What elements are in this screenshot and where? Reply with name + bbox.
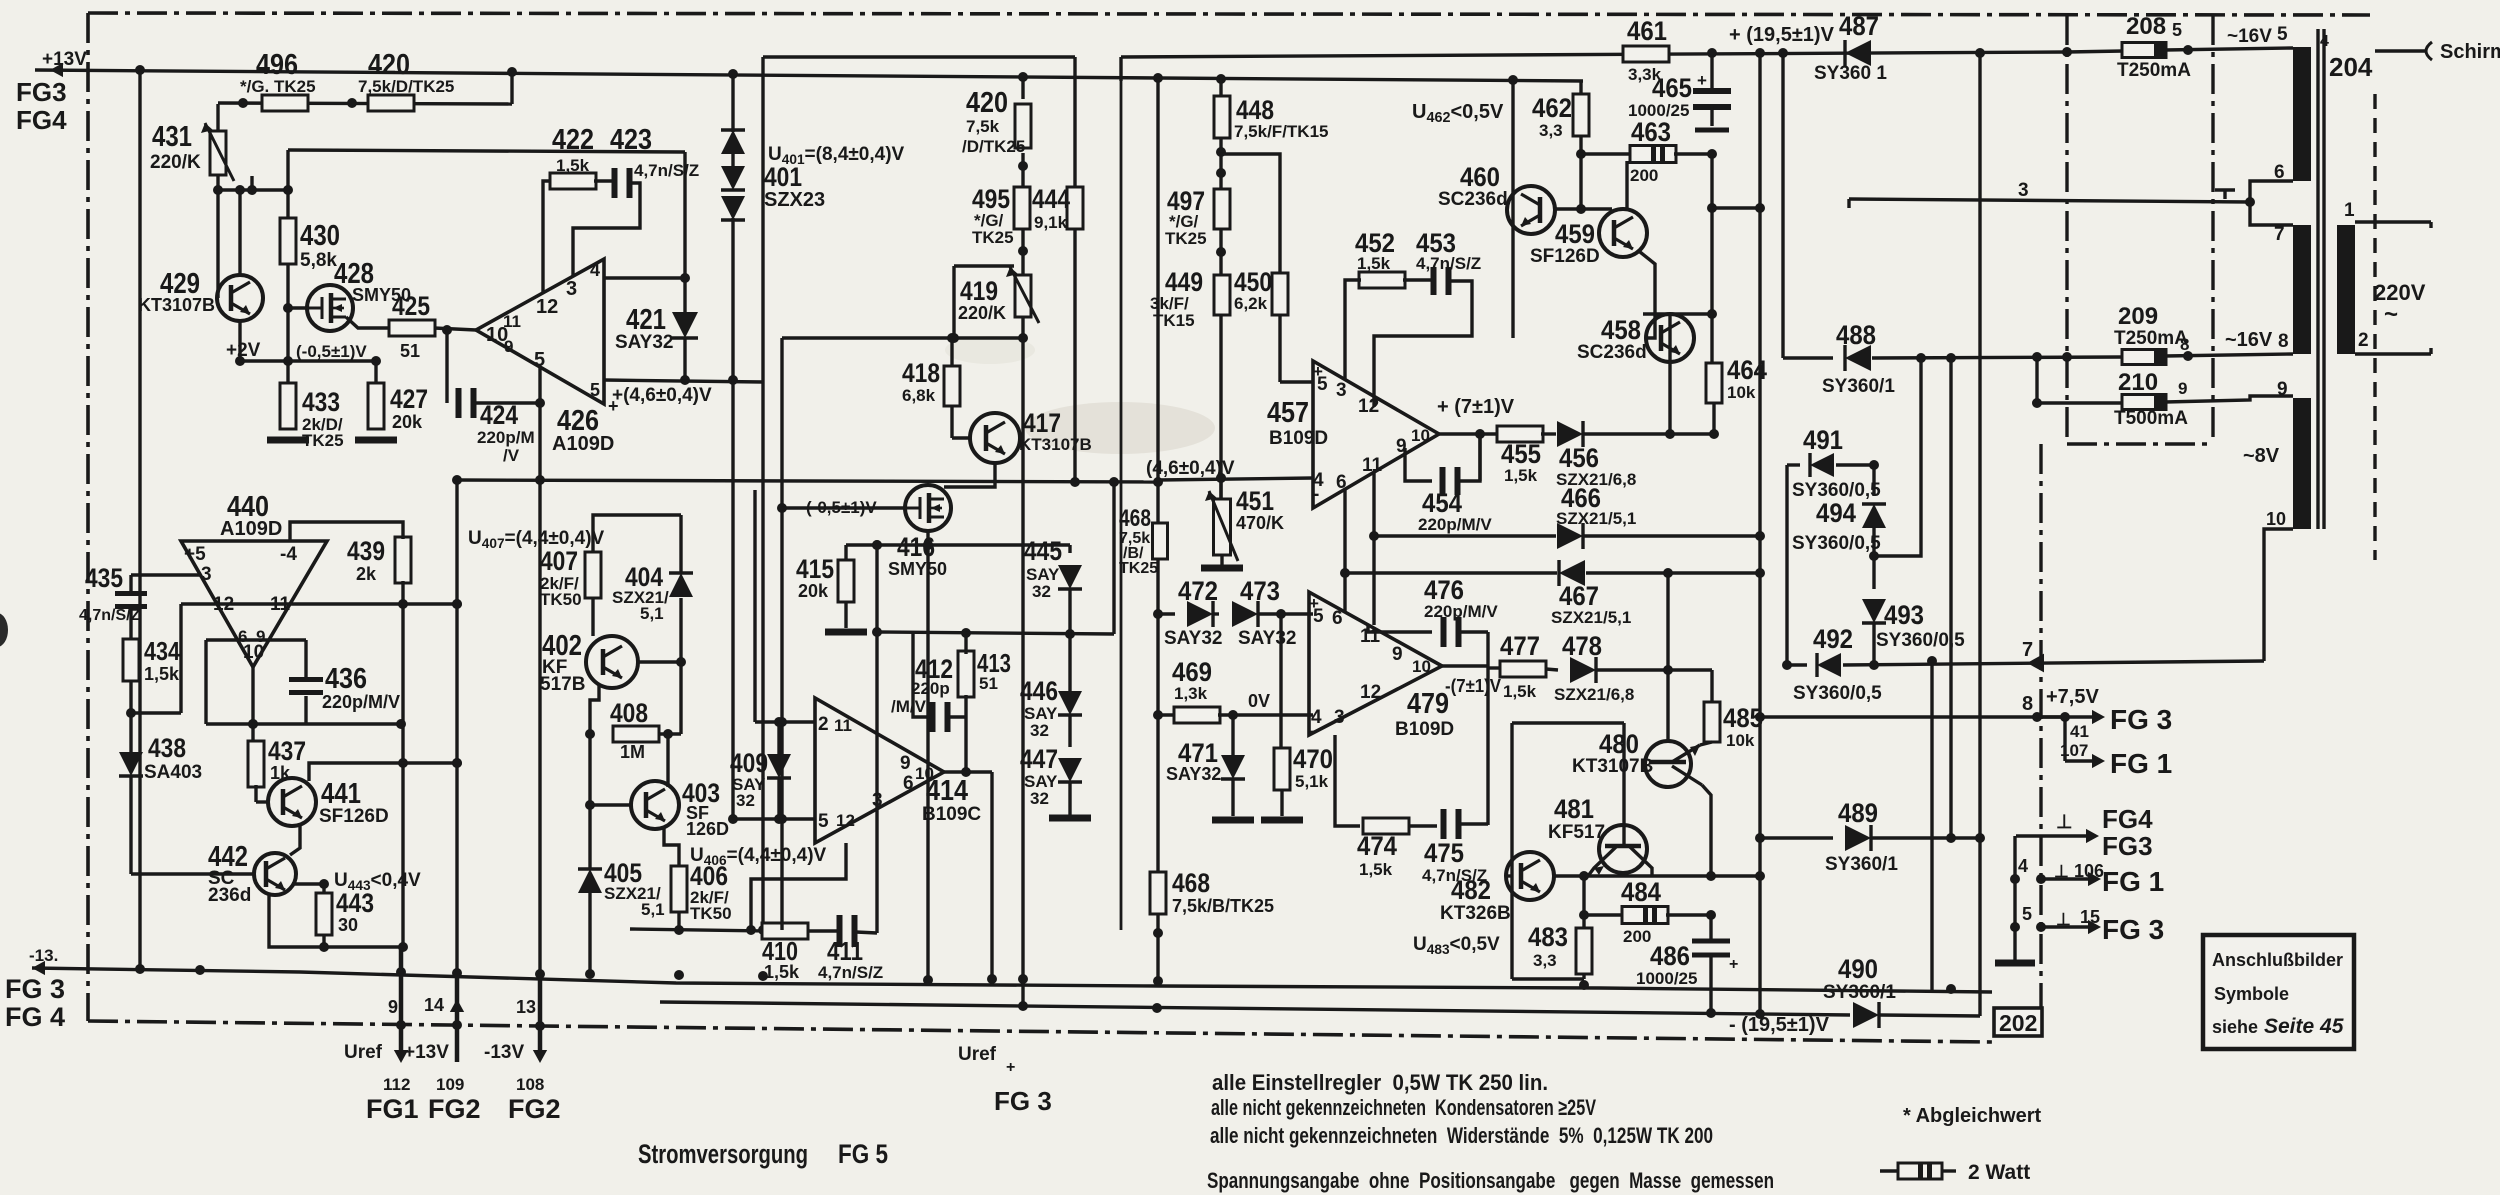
svg-text:-(7±1)V: -(7±1)V: [1445, 676, 1501, 696]
svg-text:5: 5: [590, 380, 600, 400]
svg-text:U483<0,5V: U483<0,5V: [1413, 934, 1500, 957]
svg-text:1,5k: 1,5k: [1359, 860, 1393, 879]
svg-text:4,7n/S/Z: 4,7n/S/Z: [1416, 254, 1481, 273]
svg-text:3: 3: [201, 564, 212, 585]
svg-text:32: 32: [1030, 789, 1049, 808]
svg-text:+: +: [1729, 956, 1738, 973]
svg-text:436: 436: [325, 663, 367, 695]
svg-text:220p/M/V: 220p/M/V: [322, 692, 400, 712]
svg-text:SC236d: SC236d: [1438, 189, 1508, 210]
svg-text:423: 423: [610, 124, 652, 156]
svg-text:+7,5V: +7,5V: [2046, 686, 2099, 708]
svg-text:12: 12: [836, 811, 855, 830]
svg-text:451: 451: [1236, 486, 1274, 516]
svg-text:Spannungsangabe ohne Positio: Spannungsangabe ohne Positionsangabe geg…: [1207, 1168, 1774, 1193]
svg-text:126D: 126D: [686, 819, 729, 839]
svg-text:401: 401: [764, 162, 802, 192]
svg-text:449: 449: [1165, 267, 1203, 297]
svg-text:9: 9: [2178, 379, 2187, 398]
svg-text:465: 465: [1652, 73, 1692, 103]
svg-text:11: 11: [834, 716, 852, 735]
svg-text:-: -: [1313, 484, 1319, 505]
svg-text:TK50: TK50: [540, 590, 582, 609]
svg-text:Anschlußbilder: Anschlußbilder: [2212, 950, 2343, 970]
svg-text:10k: 10k: [1726, 731, 1755, 750]
svg-text:10: 10: [1411, 426, 1430, 445]
svg-text:FG 4: FG 4: [5, 1002, 65, 1032]
svg-text:* Abgleichwert: * Abgleichwert: [1903, 1105, 2042, 1127]
svg-text:8: 8: [2022, 693, 2033, 715]
svg-text:FG4: FG4: [16, 105, 67, 135]
svg-text:4,7n/S/Z: 4,7n/S/Z: [818, 963, 883, 982]
svg-text:FG 1: FG 1: [2110, 748, 2172, 779]
svg-text:419: 419: [960, 276, 998, 306]
svg-text:SY360 1: SY360 1: [1814, 63, 1887, 84]
svg-text:487: 487: [1839, 11, 1879, 41]
svg-text:220/K: 220/K: [958, 303, 1006, 323]
svg-text:2k: 2k: [356, 564, 377, 584]
svg-text:T500mA: T500mA: [2114, 408, 2188, 429]
svg-text:SZX23: SZX23: [764, 189, 825, 211]
svg-text:486: 486: [1650, 941, 1690, 971]
svg-text:474: 474: [1357, 831, 1397, 861]
svg-text:-13.: -13.: [29, 946, 58, 965]
svg-text:FG 1: FG 1: [2102, 866, 2164, 897]
svg-text:32: 32: [1030, 721, 1049, 740]
svg-text:468: 468: [1119, 505, 1151, 532]
svg-text:SA403: SA403: [144, 762, 202, 783]
svg-text:9: 9: [504, 337, 513, 356]
svg-text:SY360/1: SY360/1: [1822, 376, 1895, 397]
svg-text:470: 470: [1293, 744, 1333, 774]
svg-text:456: 456: [1559, 443, 1599, 473]
svg-text:Uref: Uref: [344, 1042, 383, 1063]
svg-text:30: 30: [338, 915, 358, 935]
svg-text:SAY32: SAY32: [1164, 628, 1222, 649]
svg-text:425: 425: [392, 291, 430, 321]
svg-text:202: 202: [1999, 1010, 2037, 1036]
svg-text:3: 3: [566, 278, 577, 300]
svg-text:6: 6: [903, 773, 914, 794]
svg-text:427: 427: [390, 384, 428, 414]
svg-text:2 Watt: 2 Watt: [1968, 1161, 2030, 1184]
svg-text:236d: 236d: [208, 885, 251, 906]
svg-text:FG3: FG3: [16, 77, 67, 107]
svg-text:FG 3: FG 3: [5, 974, 65, 1004]
svg-text:1000/25: 1000/25: [1636, 969, 1697, 988]
svg-text:220V: 220V: [2374, 280, 2426, 305]
svg-text:FG2: FG2: [428, 1094, 481, 1124]
svg-text:492: 492: [1813, 624, 1853, 654]
svg-text:FG1: FG1: [366, 1094, 419, 1124]
svg-text:4,7n/S/Z: 4,7n/S/Z: [634, 161, 699, 180]
svg-text:461: 461: [1627, 16, 1667, 46]
svg-text:5: 5: [818, 811, 829, 832]
svg-text:469: 469: [1172, 657, 1212, 687]
svg-text:459: 459: [1555, 219, 1595, 249]
svg-text:477: 477: [1500, 631, 1540, 661]
svg-text:109: 109: [436, 1075, 464, 1094]
svg-text:-4: -4: [280, 544, 297, 565]
svg-text:220/K: 220/K: [150, 152, 201, 173]
svg-text:462: 462: [1532, 93, 1572, 123]
svg-text:493: 493: [1884, 600, 1924, 630]
svg-text:6: 6: [2274, 162, 2285, 183]
svg-text:32: 32: [736, 791, 755, 810]
svg-text:9: 9: [1392, 644, 1403, 665]
svg-text:468: 468: [1172, 868, 1210, 898]
svg-text:B109D: B109D: [1269, 428, 1328, 449]
svg-text:9: 9: [2277, 379, 2288, 400]
svg-text:208: 208: [2126, 13, 2166, 40]
svg-text:4: 4: [590, 260, 600, 280]
svg-text:FG2: FG2: [508, 1094, 561, 1124]
svg-text:434: 434: [144, 636, 180, 666]
svg-text:422: 422: [552, 124, 594, 156]
svg-text:B109C: B109C: [922, 804, 981, 825]
svg-text:439: 439: [347, 536, 385, 566]
svg-text:TK25: TK25: [1165, 229, 1207, 248]
svg-text:454: 454: [1422, 488, 1462, 518]
svg-text:411: 411: [827, 936, 863, 966]
svg-text:SY360/0,5: SY360/0,5: [1876, 630, 1965, 651]
svg-text:SAY32: SAY32: [1238, 628, 1296, 649]
svg-text:alle nicht gekennzeichneten W: alle nicht gekennzeichneten Widerstände …: [1210, 1123, 1713, 1148]
svg-text:1,5k: 1,5k: [1503, 682, 1537, 701]
svg-text:T250mA: T250mA: [2114, 328, 2188, 349]
svg-text:209: 209: [2118, 303, 2158, 330]
svg-text:7: 7: [2022, 639, 2033, 661]
svg-text:476: 476: [1424, 575, 1464, 605]
svg-text:517B: 517B: [540, 674, 585, 695]
svg-text:FG3: FG3: [2102, 831, 2153, 861]
svg-text:489: 489: [1838, 798, 1878, 828]
svg-text:FG 5: FG 5: [838, 1139, 888, 1169]
svg-text:1: 1: [2344, 200, 2355, 221]
svg-text:A109D: A109D: [220, 518, 282, 540]
svg-text:10: 10: [1412, 657, 1431, 676]
svg-text:+(4,6±0,4)V: +(4,6±0,4)V: [612, 385, 712, 406]
svg-text:470/K: 470/K: [1236, 513, 1284, 533]
svg-text:KT3107B: KT3107B: [138, 295, 215, 315]
svg-text:+5: +5: [184, 544, 206, 565]
svg-text:SAY32: SAY32: [615, 332, 673, 353]
svg-text:FG 3: FG 3: [2102, 914, 2164, 945]
svg-text:220p: 220p: [911, 679, 950, 698]
svg-text:417: 417: [1023, 408, 1061, 438]
svg-text:12: 12: [1358, 396, 1379, 417]
svg-text:5,1: 5,1: [641, 900, 665, 919]
svg-text:-13V: -13V: [484, 1042, 524, 1063]
svg-text:+: +: [1697, 71, 1707, 90]
svg-text:alle Einstellregler 0,5W TK 2: alle Einstellregler 0,5W TK 250 lin.: [1212, 1070, 1548, 1095]
svg-text:⊥: ⊥: [2056, 812, 2073, 833]
svg-text:KF517: KF517: [1548, 822, 1605, 843]
svg-text:10: 10: [243, 642, 264, 663]
svg-text:495: 495: [972, 184, 1010, 214]
svg-text:41: 41: [2070, 722, 2089, 741]
svg-text:448: 448: [1236, 95, 1274, 125]
svg-text:415: 415: [796, 554, 834, 584]
svg-text:4: 4: [2320, 33, 2329, 50]
svg-text:443: 443: [336, 888, 374, 918]
svg-text:8: 8: [2278, 331, 2289, 352]
svg-text:406: 406: [690, 861, 728, 891]
svg-text:420: 420: [966, 87, 1008, 119]
svg-text:FG4: FG4: [2102, 804, 2153, 834]
svg-text:20k: 20k: [392, 412, 423, 432]
svg-text:+: +: [1313, 362, 1323, 381]
svg-text:13: 13: [516, 997, 536, 1017]
svg-text:6: 6: [1332, 608, 1343, 629]
svg-text:*/G. TK25: */G. TK25: [240, 77, 316, 96]
svg-text:473: 473: [1240, 576, 1280, 606]
svg-text:4,7n/S/Z: 4,7n/S/Z: [79, 607, 141, 624]
svg-text:2: 2: [2358, 330, 2369, 351]
svg-text:+13V: +13V: [42, 49, 87, 70]
svg-text:3: 3: [1334, 707, 1345, 728]
svg-text:/D/TK25: /D/TK25: [962, 137, 1025, 156]
svg-text:TK25: TK25: [1119, 560, 1158, 577]
svg-text:1,5k: 1,5k: [1357, 254, 1391, 273]
svg-text:A109D: A109D: [552, 433, 614, 455]
svg-text:1M: 1M: [620, 742, 645, 762]
svg-text:-: -: [1309, 721, 1315, 742]
svg-text:siehe: siehe: [2212, 1017, 2258, 1037]
svg-text:479: 479: [1407, 688, 1449, 720]
svg-text:12: 12: [1360, 682, 1381, 703]
svg-text:418: 418: [902, 358, 940, 388]
svg-text:430: 430: [300, 220, 340, 252]
svg-text:KT3107B: KT3107B: [1572, 756, 1653, 777]
svg-text:SY360/1: SY360/1: [1823, 982, 1896, 1003]
svg-text:438: 438: [148, 733, 186, 763]
svg-text:424: 424: [480, 400, 518, 430]
svg-text:480: 480: [1599, 729, 1639, 759]
svg-text:200: 200: [1630, 166, 1658, 185]
svg-text:7,5k/F/TK15: 7,5k/F/TK15: [1234, 122, 1329, 141]
svg-text:220p/M/V: 220p/M/V: [1424, 602, 1498, 621]
svg-text:9,1k: 9,1k: [1034, 213, 1068, 232]
svg-text:204: 204: [2329, 52, 2373, 82]
svg-text:457: 457: [1267, 397, 1309, 429]
svg-text:+ (19,5±1)V: + (19,5±1)V: [1729, 24, 1835, 46]
svg-text:Seite 45: Seite 45: [2264, 1015, 2344, 1038]
svg-text:220p/M/V: 220p/M/V: [1418, 515, 1492, 534]
svg-text:5,8k: 5,8k: [300, 250, 337, 271]
svg-text:210: 210: [2118, 369, 2158, 396]
svg-text:446: 446: [1020, 676, 1058, 706]
svg-text:433: 433: [302, 387, 340, 417]
svg-text:490: 490: [1838, 954, 1878, 984]
svg-text:10: 10: [2266, 509, 2286, 529]
svg-text:Schirm: Schirm: [2440, 41, 2500, 63]
svg-text:~: ~: [2384, 301, 2398, 328]
svg-text:475: 475: [1424, 838, 1464, 868]
svg-text:11: 11: [1362, 455, 1383, 476]
svg-text:478: 478: [1562, 631, 1602, 661]
svg-text:0V: 0V: [1248, 691, 1270, 711]
svg-text:7,5k/D/TK25: 7,5k/D/TK25: [358, 77, 454, 96]
svg-text:20k: 20k: [798, 581, 829, 601]
svg-text:3,3: 3,3: [1539, 121, 1563, 140]
svg-text:488: 488: [1836, 320, 1876, 350]
svg-text:KT3107B: KT3107B: [1019, 435, 1092, 454]
svg-text:1,5k: 1,5k: [144, 664, 180, 684]
svg-text:1,5k: 1,5k: [1504, 466, 1538, 485]
svg-text:4: 4: [2018, 856, 2028, 876]
svg-text:220p/M: 220p/M: [477, 428, 535, 447]
svg-text:444: 444: [1032, 184, 1070, 214]
svg-text:9: 9: [900, 753, 911, 774]
svg-text:481: 481: [1554, 794, 1594, 824]
svg-text:U462<0,5V: U462<0,5V: [1412, 101, 1504, 126]
svg-text:414: 414: [926, 775, 968, 807]
svg-text:6,8k: 6,8k: [902, 386, 936, 405]
svg-text:Symbole: Symbole: [2214, 984, 2289, 1004]
svg-text:11: 11: [1360, 626, 1381, 647]
svg-text:10k: 10k: [1727, 383, 1756, 402]
svg-text:SY360/0,5: SY360/0,5: [1793, 683, 1882, 704]
svg-text:9: 9: [388, 997, 398, 1017]
svg-text:~8V: ~8V: [2243, 445, 2280, 467]
svg-text:407: 407: [540, 546, 578, 576]
svg-text:484: 484: [1621, 877, 1661, 907]
svg-text:T250mA: T250mA: [2117, 60, 2191, 81]
svg-text:460: 460: [1460, 162, 1500, 192]
svg-text:447: 447: [1020, 744, 1058, 774]
svg-text:3,3: 3,3: [1533, 951, 1557, 970]
svg-text:463: 463: [1631, 117, 1671, 147]
svg-text:+ (7±1)V: + (7±1)V: [1437, 396, 1515, 418]
svg-text:8: 8: [2180, 335, 2189, 354]
svg-text:~16V: ~16V: [2225, 329, 2273, 351]
svg-text:+: +: [1309, 594, 1319, 613]
svg-text:- (19,5±1)V: - (19,5±1)V: [1729, 1014, 1830, 1036]
svg-text:112: 112: [383, 1075, 410, 1094]
svg-text:SZX21/6,8: SZX21/6,8: [1554, 685, 1634, 704]
svg-text:450: 450: [1234, 267, 1272, 297]
svg-text:SY360/0,5: SY360/0,5: [1792, 533, 1881, 554]
svg-text:467: 467: [1559, 581, 1599, 611]
svg-text:SC236d: SC236d: [1577, 342, 1647, 363]
svg-text:SAY32: SAY32: [1166, 764, 1221, 784]
svg-text:3: 3: [2018, 180, 2029, 201]
svg-text:445: 445: [1024, 536, 1062, 566]
svg-text:51: 51: [400, 341, 420, 361]
svg-text:5: 5: [2172, 20, 2182, 40]
svg-text:5,1k: 5,1k: [1295, 772, 1329, 791]
svg-text:14: 14: [424, 995, 444, 1015]
svg-text:5: 5: [2277, 24, 2288, 45]
svg-text:431: 431: [152, 121, 192, 153]
svg-text:alle nicht gekennzeichneten K: alle nicht gekennzeichneten Kondensatore…: [1211, 1095, 1596, 1120]
svg-text:435: 435: [85, 563, 123, 593]
svg-text:409: 409: [730, 748, 768, 778]
svg-text:SZX21/5,1: SZX21/5,1: [1556, 509, 1636, 528]
svg-text:7: 7: [2274, 224, 2285, 245]
svg-text:/V: /V: [503, 446, 520, 465]
svg-text:SMY50: SMY50: [888, 559, 947, 579]
svg-text:SF126D: SF126D: [1530, 246, 1600, 267]
svg-text:494: 494: [1816, 498, 1856, 528]
svg-text:TK50: TK50: [690, 904, 732, 923]
svg-text:SY360/1: SY360/1: [1825, 854, 1898, 875]
svg-text:1,5k: 1,5k: [556, 156, 590, 175]
svg-text:1,5k: 1,5k: [764, 962, 800, 982]
svg-text:32: 32: [1032, 582, 1051, 601]
svg-text:5,1: 5,1: [640, 604, 664, 623]
svg-text:Uref: Uref: [958, 1044, 997, 1065]
svg-text:SF126D: SF126D: [319, 806, 389, 827]
svg-text:Stromversorgung: Stromversorgung: [638, 1139, 808, 1169]
svg-text:2: 2: [818, 714, 829, 735]
svg-text:51: 51: [979, 674, 998, 693]
svg-text:458: 458: [1601, 315, 1641, 345]
svg-text:482: 482: [1451, 875, 1491, 905]
svg-text:FG 3: FG 3: [2110, 704, 2172, 735]
svg-text:/M/V: /M/V: [891, 697, 927, 716]
svg-text:~16V: ~16V: [2227, 26, 2272, 47]
svg-text:3: 3: [1336, 380, 1347, 401]
svg-text:KT326B: KT326B: [1440, 903, 1511, 924]
svg-text:108: 108: [516, 1075, 544, 1094]
svg-text:483: 483: [1528, 922, 1568, 952]
svg-text:FG 3: FG 3: [994, 1086, 1052, 1116]
svg-text:B109D: B109D: [1395, 719, 1454, 740]
svg-text:437: 437: [268, 736, 306, 766]
svg-text:+13V: +13V: [404, 1042, 449, 1063]
svg-text:6,2k: 6,2k: [1234, 294, 1268, 313]
svg-text:408: 408: [610, 698, 648, 728]
svg-text:472: 472: [1178, 576, 1218, 606]
svg-text:7,5k/B/TK25: 7,5k/B/TK25: [1172, 896, 1274, 916]
svg-text:491: 491: [1803, 425, 1843, 455]
svg-text:5: 5: [2022, 904, 2032, 924]
svg-text:(-0,5±1)V: (-0,5±1)V: [296, 342, 367, 361]
svg-text:200: 200: [1623, 927, 1651, 946]
svg-text:1,3k: 1,3k: [1174, 684, 1208, 703]
svg-text:7,5k: 7,5k: [966, 117, 1000, 136]
svg-text:12: 12: [536, 296, 558, 318]
svg-text:SZX21/5,1: SZX21/5,1: [1551, 608, 1631, 627]
svg-text:+: +: [1006, 1059, 1015, 1076]
svg-text:455: 455: [1501, 439, 1541, 469]
svg-text:TK25: TK25: [972, 228, 1014, 247]
svg-text:+2V: +2V: [226, 340, 261, 361]
